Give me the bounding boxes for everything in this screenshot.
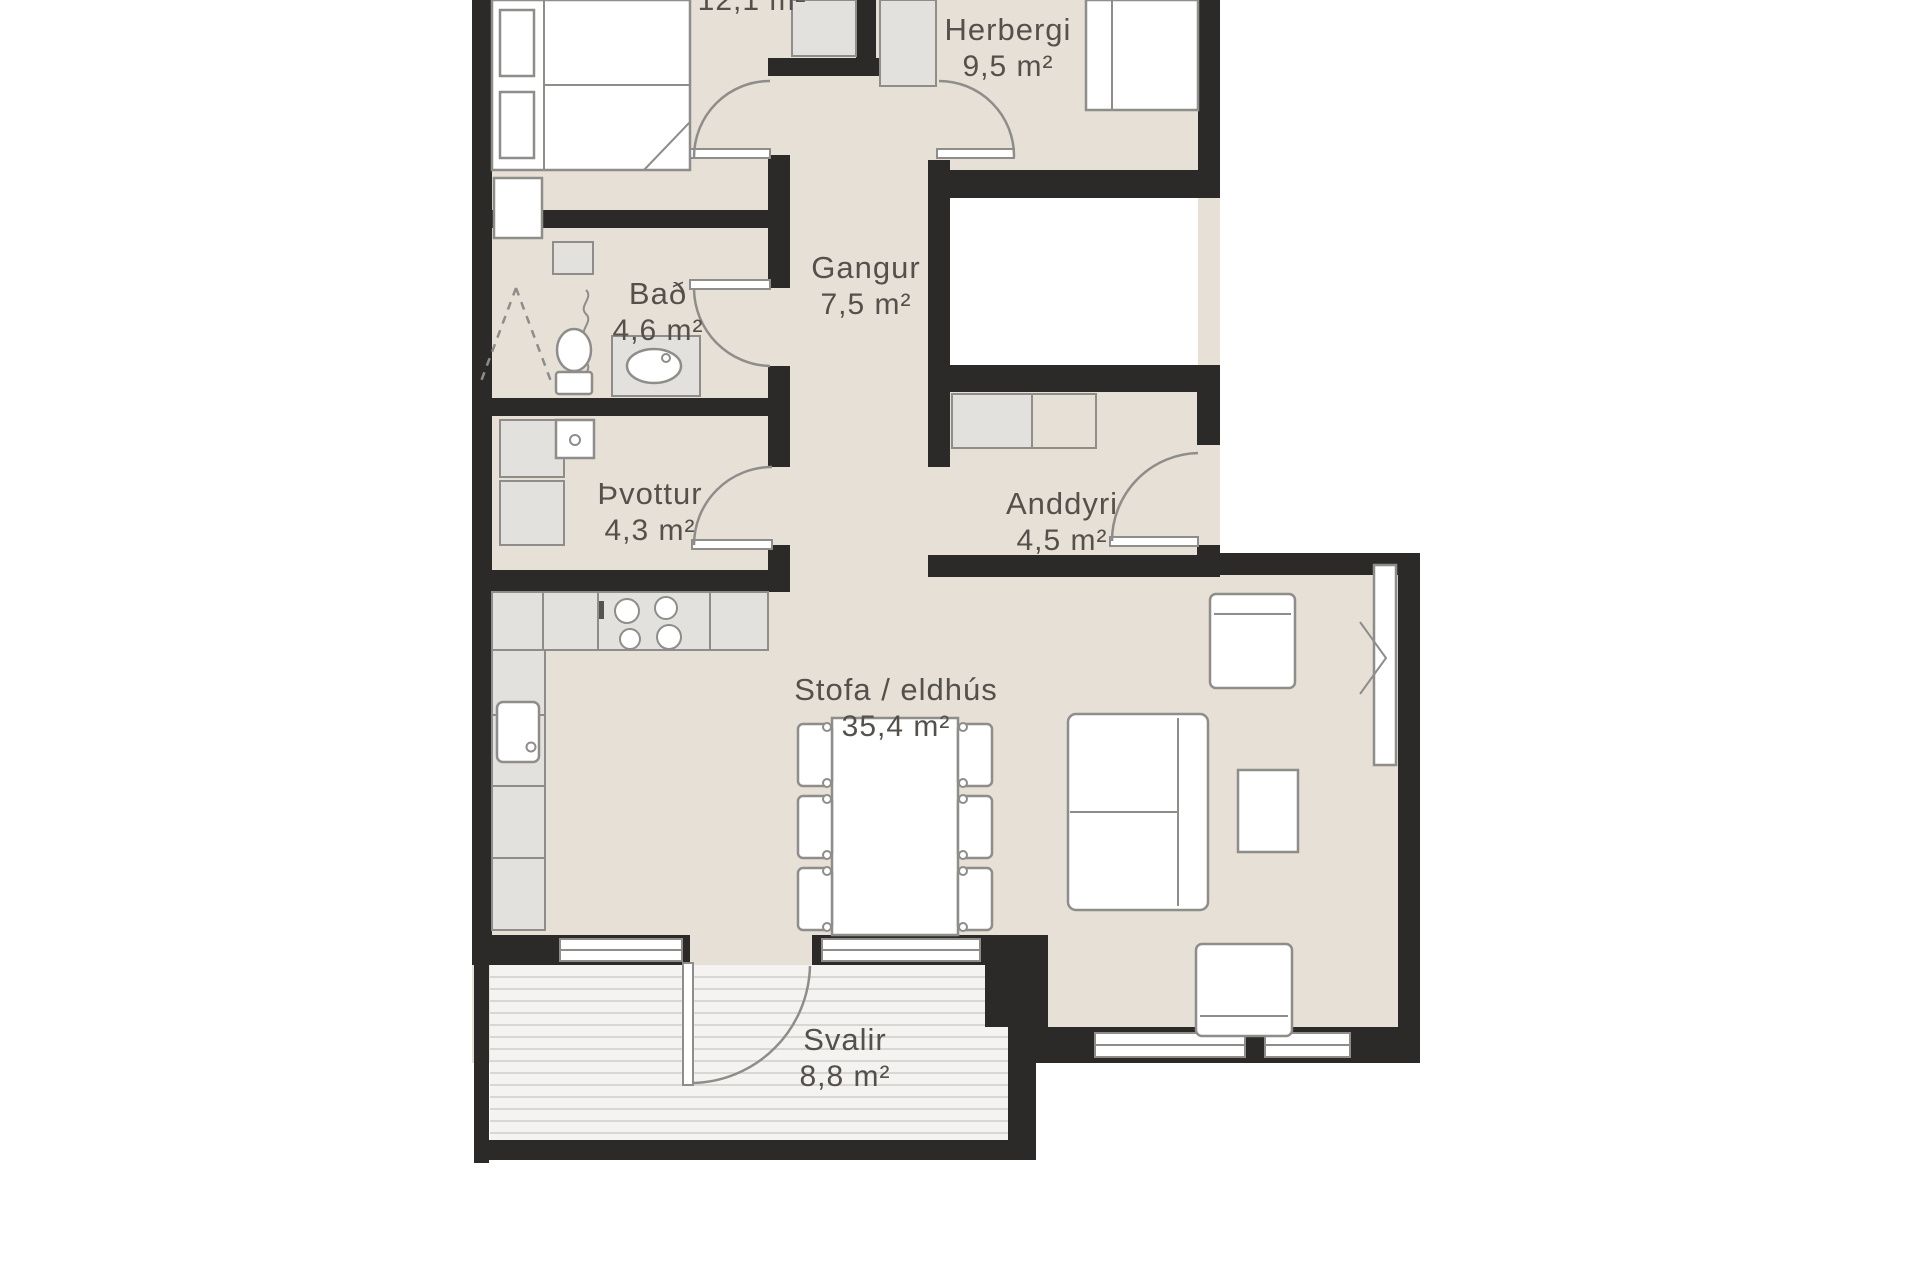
wall-anddyri-left [928, 160, 950, 467]
wall-laundry-kitchen [472, 570, 790, 592]
wall-step [985, 935, 1048, 1027]
dining-set [798, 718, 992, 935]
kitchen-sink-icon [497, 702, 539, 762]
wall-bath-laundry [472, 398, 790, 416]
label-anddyri: Anddyri [1006, 486, 1118, 521]
closet-herbergi-icon [880, 0, 936, 86]
label-bad: Bað [629, 276, 687, 311]
wall-right [1398, 553, 1420, 1063]
dryer-icon [500, 481, 564, 545]
window-living-mid [822, 939, 980, 961]
entry-closet-icon [952, 394, 1032, 448]
kitchen-cabinets-icon [492, 650, 545, 930]
floorplan-page: 12,1 m² Herbergi 9,5 m² Gangur 7,5 m² Ba… [0, 0, 1920, 1280]
wall-anddyri-bottom [928, 555, 1197, 577]
label-anddyri-area: 4,5 m² [1016, 524, 1107, 557]
label-gangur: Gangur [811, 250, 920, 285]
armchair-top-icon [1210, 594, 1295, 688]
dining-table-icon [832, 718, 958, 935]
exterior-notch [950, 198, 1198, 365]
laundry-sink-icon [556, 420, 594, 458]
label-herbergi-area: 9,5 m² [962, 50, 1053, 83]
label-stofa-area: 35,4 m² [842, 710, 951, 743]
label-gangur-area: 7,5 m² [820, 288, 911, 321]
label-svefnherbergi-area: 12,1 m² [698, 0, 807, 17]
nightstand-icon [494, 178, 542, 238]
wall-entry-right-upper [1197, 392, 1220, 445]
label-svalir-area: 8,8 m² [799, 1060, 890, 1093]
wall-balcony-bottom [474, 1140, 1036, 1160]
wall-left [472, 0, 492, 965]
label-thvottur-area: 4,3 m² [604, 514, 695, 547]
balcony-deck [490, 965, 1008, 1140]
bath-cabinet-icon [553, 242, 593, 274]
window-living-left [560, 939, 682, 961]
dining-chairs-left [798, 723, 832, 931]
wall-balcony-left [474, 965, 489, 1163]
label-thvottur: Þvottur [597, 476, 702, 511]
wall-herbergi-right [1198, 0, 1220, 198]
toilet-icon [556, 329, 592, 394]
wall-closet-divider [856, 0, 876, 58]
label-stofa: Stofa / eldhús [794, 672, 998, 707]
coffee-table-icon [1238, 770, 1298, 852]
label-svalir: Svalir [803, 1022, 887, 1057]
wall-herbergi-bottom [937, 170, 1220, 198]
label-bad-area: 4,6 m² [612, 314, 703, 347]
dining-chairs-right [958, 723, 992, 931]
label-herbergi: Herbergi [945, 12, 1072, 47]
sofa-icon [1068, 714, 1208, 910]
single-bed-icon [1086, 0, 1198, 110]
wall-anddyri-top [928, 365, 1220, 392]
floorplan-drawing: 12,1 m² Herbergi 9,5 m² Gangur 7,5 m² Ba… [0, 0, 1920, 1280]
armchair-bottom-icon [1196, 944, 1292, 1036]
double-bed-icon [492, 0, 690, 170]
wall-entry-right-lower [1197, 545, 1220, 577]
washer-icon [500, 420, 564, 477]
